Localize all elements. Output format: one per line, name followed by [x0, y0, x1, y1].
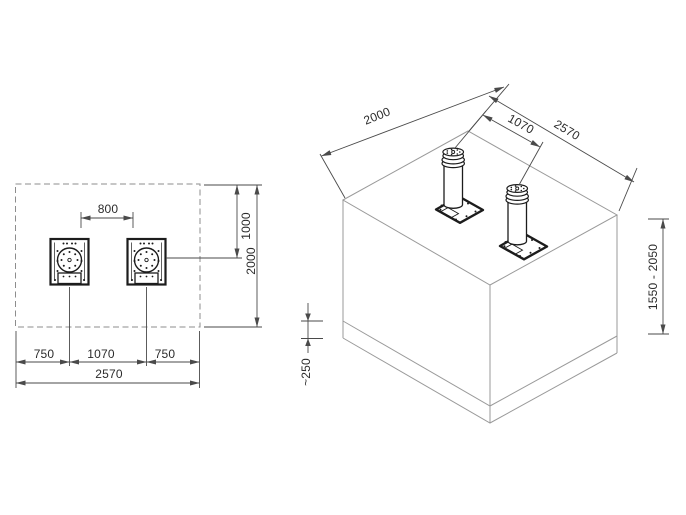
dim-label-base-layer: ~250	[299, 358, 313, 386]
drawing-linework	[0, 0, 686, 515]
dim-label-edge-to-axis: 1000	[239, 212, 253, 240]
iso-bollard-left	[436, 148, 483, 223]
dim-label-plan-axis-spacing: 1070	[87, 347, 115, 361]
iso-dimensions	[301, 84, 669, 353]
iso-base-layer-edge	[343, 338, 617, 423]
dim-label-left-margin: 750	[34, 347, 55, 361]
plan-bollard-right	[128, 239, 166, 285]
dim-label-right-margin: 750	[155, 347, 176, 361]
iso-view	[301, 84, 669, 423]
dim-label-bollard-gap: 800	[98, 202, 119, 216]
iso-pit-box	[343, 131, 617, 423]
iso-bollard-right	[500, 185, 547, 260]
dim-label-plan-pit-width: 2570	[95, 367, 123, 381]
installation-drawing: 800 1000 2000 750 1070 750 2570 2000 107…	[0, 0, 686, 515]
dim-label-pit-height-range: 1550 - 2050	[646, 244, 660, 310]
plan-bollard-left	[51, 239, 89, 285]
dim-label-plan-pit-depth: 2000	[244, 247, 258, 275]
